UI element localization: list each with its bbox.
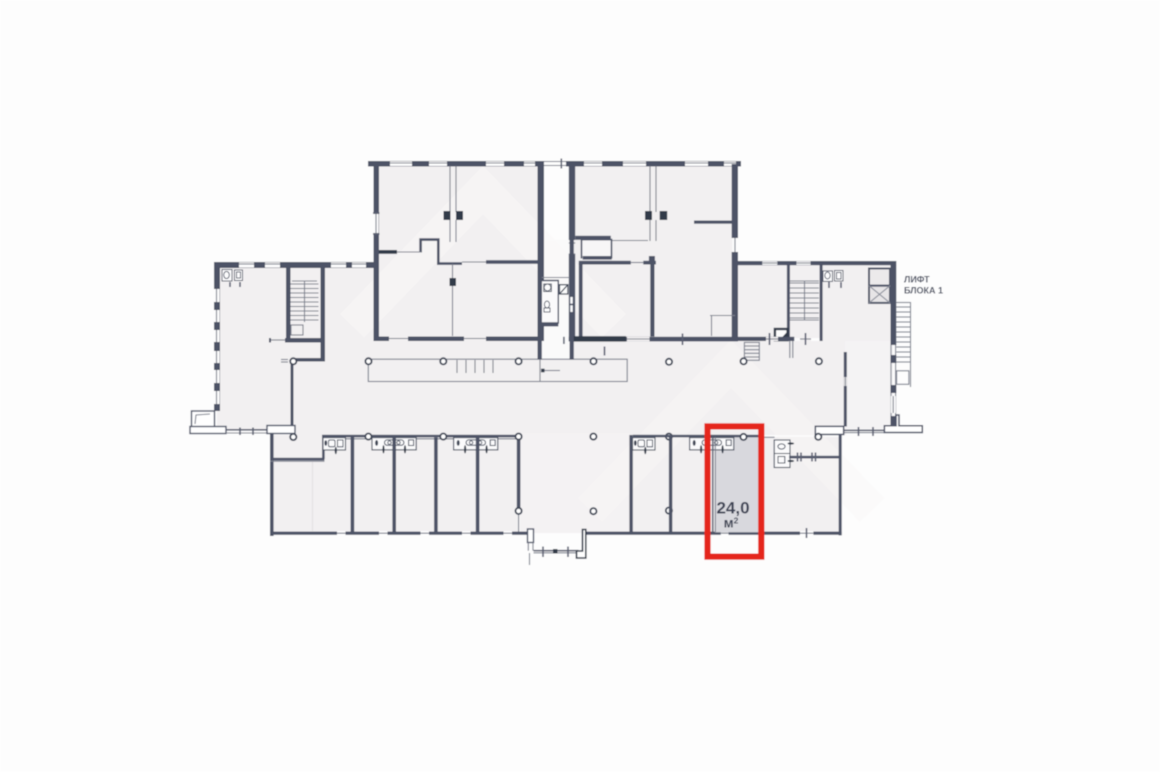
svg-text:БЛОКА 1: БЛОКА 1 bbox=[904, 286, 943, 296]
svg-text:ЛИФТ: ЛИФТ bbox=[904, 274, 930, 284]
